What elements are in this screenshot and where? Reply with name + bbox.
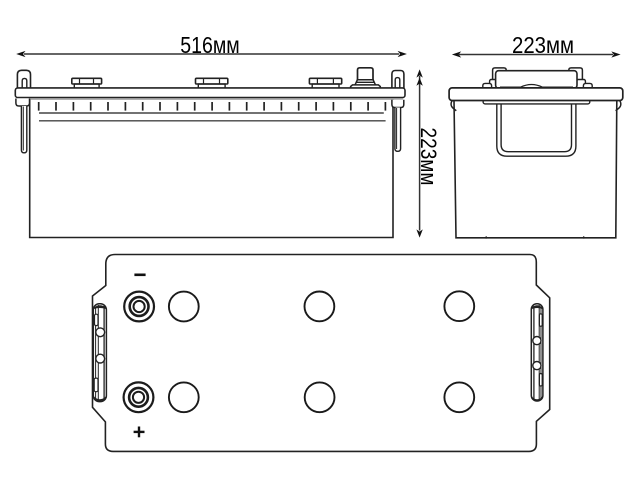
svg-text:223мм: 223мм	[512, 32, 574, 58]
svg-text:223мм: 223мм	[416, 128, 441, 186]
svg-text:516мм: 516мм	[180, 32, 240, 58]
